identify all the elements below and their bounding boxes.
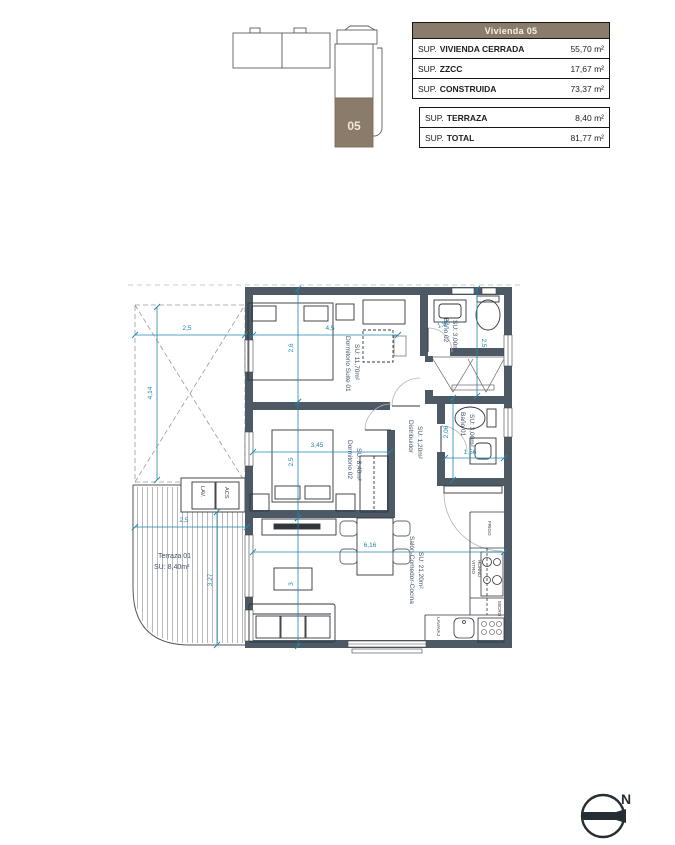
dimension-label: 4,5	[325, 325, 334, 332]
floorplan-sheet: { "summary": { "title": "Vivienda 05", "…	[0, 0, 675, 845]
room-label-dorm02-name: Dormitorio 02	[346, 440, 353, 479]
area-summary-table: Vivienda 05 SUP.VIVIENDA CERRADA55,70 m²…	[412, 22, 610, 99]
label-acs: ACS	[223, 487, 229, 499]
room-label-dorm02-area: SU: 8,40m²	[355, 448, 362, 482]
table-row: SUP.CONSTRUIDA73,37 m²	[413, 78, 609, 98]
label-micro: MICRO	[497, 601, 502, 617]
table-row: SUP.ZZCC17,67 m²	[413, 58, 609, 78]
room-label-distribuidor-area: SU: 1,20m²	[416, 426, 423, 460]
key-plan: 05	[233, 26, 382, 147]
room-label-distribuidor-name: Distribuidor	[407, 420, 414, 454]
dimension-label: 2,06	[443, 425, 450, 438]
room-label-bano01-name: Baño 01	[459, 412, 466, 437]
walls	[245, 287, 512, 648]
table-row: SUP.TOTAL81,77 m²	[420, 127, 609, 147]
dimension-label: 2,5	[182, 325, 191, 332]
dimension-label: 4,14	[147, 386, 154, 399]
dimension-label: 2,5	[288, 457, 295, 466]
room-label-salon-area: SU: 21,20m²	[417, 552, 424, 589]
dimension-label: 1,56	[464, 449, 477, 456]
area-value: 55,70 m²	[570, 44, 604, 54]
room-label-salon-name: Salón-Comedor-Cocina	[408, 536, 415, 604]
key-plan-unit-label: 05	[347, 119, 361, 133]
area-value: 73,37 m²	[570, 84, 604, 94]
north-label: N	[621, 791, 631, 807]
room-label-suite-name: Dormitorio Suite 01	[344, 336, 351, 392]
room-label-bano02-area: SU: 3,00m²	[451, 320, 458, 354]
room-label-terraza-name: Terraza 01	[158, 553, 191, 560]
dimension-label: 2,6	[288, 343, 295, 352]
kitchen-labels: FRIGO VITRO HORNO MICRO LAVAVAJ	[436, 521, 502, 636]
dimension-label: 3,45	[311, 442, 324, 449]
dimension-label: 3,27	[207, 573, 214, 586]
north-arrow: N	[582, 791, 631, 837]
label-horno: HORNO	[477, 560, 482, 578]
dimension-label: 2,5	[480, 338, 487, 347]
table-row: SUP.TERRAZA8,40 m²	[420, 108, 609, 127]
dimension-label: 3	[288, 582, 295, 586]
label-frigo: FRIGO	[487, 521, 492, 536]
entrance-door-arc	[444, 493, 502, 551]
table-row: SUP.VIVIENDA CERRADA55,70 m²	[413, 39, 609, 58]
area-totals-table: SUP.TERRAZA8,40 m²SUP.TOTAL81,77 m²	[419, 107, 610, 148]
furniture	[248, 296, 504, 642]
label-lav: LAV.	[199, 486, 205, 498]
room-label-suite-area: SU: 11,70m²	[353, 344, 360, 381]
area-value: 8,40 m²	[575, 113, 604, 123]
area-value: 81,77 m²	[570, 133, 604, 143]
table-header: Vivienda 05	[413, 23, 609, 39]
room-labels: Dormitorio Suite 01 SU: 11,70m² Baño 02 …	[344, 318, 475, 604]
room-label-terraza-area: SU: 8,40m²	[154, 564, 190, 571]
dimension-label: 2,5	[179, 517, 188, 524]
room-label-bano01-area: SU: 3,00m²	[468, 414, 475, 448]
suite-door-arc	[392, 378, 420, 406]
entrance-door-leaf	[444, 486, 502, 493]
label-vitro: VITRO	[471, 560, 476, 574]
area-value: 17,67 m²	[570, 64, 604, 74]
label-lavavaj: LAVAVAJ	[436, 617, 441, 636]
dimension-label: 6,16	[364, 542, 377, 549]
lav-acs-closet: LAV. ACS	[181, 478, 245, 512]
